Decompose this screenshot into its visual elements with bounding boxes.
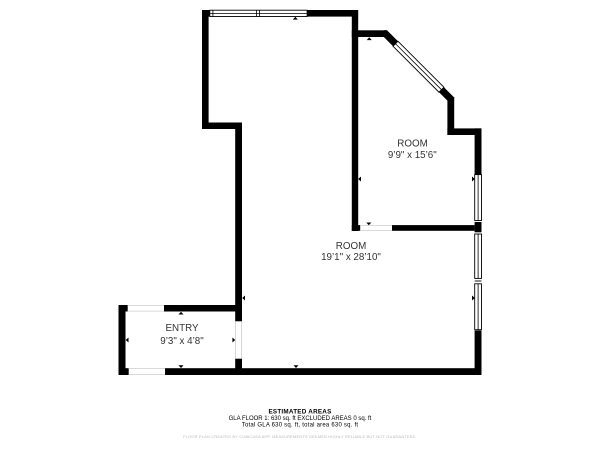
svg-text:ENTRY: ENTRY (165, 323, 198, 334)
svg-text:ROOM: ROOM (336, 241, 366, 252)
svg-text:GLA FLOOR 1: 630 sq. ft EXCLUD: GLA FLOOR 1: 630 sq. ft EXCLUDED AREAS 0… (229, 416, 372, 422)
svg-text:19’1" x 28’10": 19’1" x 28’10" (321, 252, 381, 263)
svg-text:Total GLA 630 sq. ft, total ar: Total GLA 630 sq. ft, total area 630 sq.… (242, 422, 359, 428)
svg-text:9’3" x 4’8": 9’3" x 4’8" (160, 336, 204, 347)
svg-text:FLOOR PLAN CREATED BY CUBICASA: FLOOR PLAN CREATED BY CUBICASA APP. MEAS… (183, 434, 417, 439)
svg-text:9’9" x 15’6": 9’9" x 15’6" (388, 150, 437, 161)
svg-text:ESTIMATED AREAS: ESTIMATED AREAS (268, 409, 331, 416)
svg-text:ROOM: ROOM (397, 138, 427, 149)
